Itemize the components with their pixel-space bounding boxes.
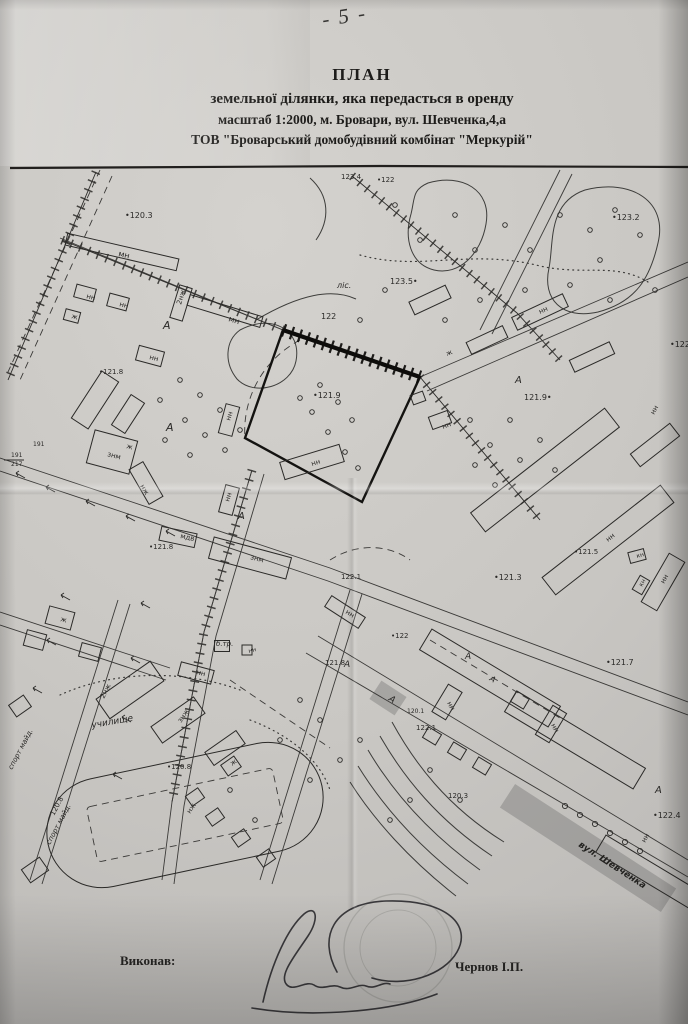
map-label: •121.7 — [606, 658, 634, 667]
plan-company: ТОВ "Броварський домобудівний комбінат "… — [46, 130, 678, 150]
map-label: •121.8 — [99, 368, 123, 376]
map-label: знм — [106, 450, 121, 461]
map-label: нн — [537, 305, 549, 316]
map-label: 123.5• — [390, 277, 418, 286]
map-label: ж — [445, 348, 454, 358]
plan-title: ПЛАН — [46, 62, 678, 88]
map-label: ліс. — [336, 281, 351, 290]
executed-by-label: Виконав: — [120, 953, 175, 969]
map-label: нн — [549, 722, 560, 734]
map-label: нн — [445, 700, 456, 712]
map-label: А — [487, 673, 497, 684]
map-label: •121.9 — [313, 391, 341, 400]
plan-subtitle: земельної ділянки, яка передасться в оре… — [46, 88, 678, 111]
plan-map: •120.3мнннннж2нжмнАннліс.123.5••123.2123… — [0, 0, 688, 1024]
map-label: спорт майд. — [7, 728, 35, 771]
ravine-contours — [350, 722, 504, 896]
map-label: училище — [90, 714, 135, 731]
parcel-boundary — [245, 330, 420, 502]
executor-name: Чернов І.П. — [455, 959, 523, 975]
map-label: знм — [249, 553, 264, 564]
map-label: нн — [441, 420, 452, 431]
map-label: нн — [248, 646, 257, 655]
map-label: •121.3 — [494, 573, 522, 582]
map-label: А — [464, 652, 471, 662]
map-label: 122.1 — [416, 724, 436, 732]
map-label: 217 — [11, 461, 23, 468]
map-label: нж — [138, 483, 151, 497]
map-label: мн — [118, 249, 131, 260]
map-label: нн — [148, 353, 159, 363]
map-label: А — [514, 375, 522, 386]
map-label: •121.5 — [574, 548, 598, 556]
map-label: 2нж — [99, 682, 113, 700]
map-label: нн — [640, 832, 652, 844]
map-frame-line — [10, 166, 688, 168]
map-label: нн — [604, 532, 616, 544]
map-label: б.тр. — [216, 640, 233, 648]
buildings — [9, 233, 688, 909]
map-label: •122 — [377, 176, 395, 184]
scanned-plan-photo: - 5 - ПЛАН земельної ділянки, яка переда… — [0, 0, 688, 1024]
roads — [0, 170, 688, 884]
map-label: •122.1 — [670, 340, 688, 349]
map-label: ж — [59, 615, 68, 625]
map-label: 121.8 — [325, 659, 345, 667]
map-label: ж — [125, 442, 134, 452]
map-label: •120.3 — [125, 211, 153, 220]
map-label: 191 — [11, 452, 23, 459]
map-label: нн — [195, 668, 206, 678]
map-labels: •120.3мнннннж2нжмнАннліс.123.5••123.2123… — [7, 173, 688, 891]
map-label: нн — [224, 410, 234, 421]
map-label: •122.4 — [653, 811, 681, 820]
map-label: 120.3 — [448, 792, 468, 800]
map-label: нн — [659, 573, 671, 585]
map-label: 191 — [33, 441, 45, 448]
title-block: ПЛАН земельної ділянки, яка передасться … — [46, 62, 678, 151]
map-label: нн — [649, 404, 661, 416]
map-label: А — [237, 511, 245, 522]
map-label: •123.2 — [612, 213, 640, 222]
map-label: А — [654, 785, 662, 796]
map-label: А — [165, 421, 174, 434]
map-label: ж — [70, 312, 79, 322]
map-label: мдв — [180, 532, 196, 543]
map-label: кн — [636, 551, 645, 560]
contour-lines — [228, 178, 660, 388]
map-label: нн — [310, 458, 321, 468]
map-label: 123.4 — [341, 173, 362, 181]
plan-scale-address: масштаб 1:2000, м. Бровари, вул. Шевченк… — [46, 110, 678, 130]
map-label: 2нж — [175, 288, 187, 306]
signature — [252, 901, 461, 1013]
map-label: мн — [227, 314, 240, 326]
map-label: •120.8 — [167, 763, 191, 771]
fence-lines — [8, 172, 560, 802]
map-label: 120.1 — [407, 708, 424, 715]
map-label: нн — [223, 491, 233, 502]
map-label: 121.9• — [524, 393, 552, 402]
map-label: •122 — [391, 632, 409, 640]
map-label: •121.8 — [149, 543, 173, 551]
map-label: 122 — [321, 312, 336, 321]
map-label: А — [343, 660, 350, 670]
map-label: А — [162, 319, 171, 332]
map-label: 122.1 — [341, 573, 361, 581]
